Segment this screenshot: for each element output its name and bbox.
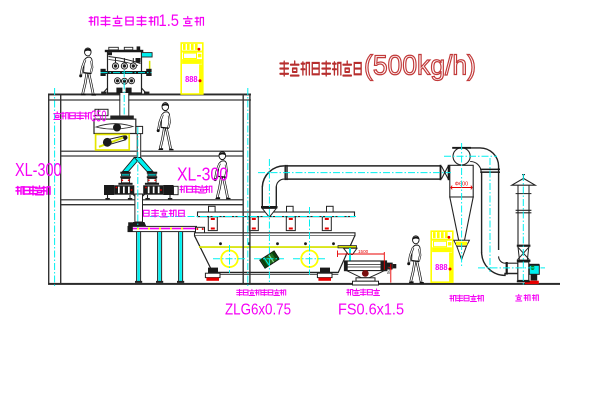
svg-text:350: 350 xyxy=(91,109,107,126)
svg-text:1.5: 1.5 xyxy=(159,11,180,30)
svg-text:500: 500 xyxy=(386,266,391,274)
svg-text:FS0.6x1.5: FS0.6x1.5 xyxy=(338,302,404,319)
svg-text:(500kg/h): (500kg/h) xyxy=(364,50,476,81)
svg-text:XL-300: XL-300 xyxy=(15,159,62,180)
svg-text:XL-300: XL-300 xyxy=(177,164,228,185)
svg-text:ZLG6x0.75: ZLG6x0.75 xyxy=(225,302,291,319)
svg-text:1500: 1500 xyxy=(358,249,369,254)
